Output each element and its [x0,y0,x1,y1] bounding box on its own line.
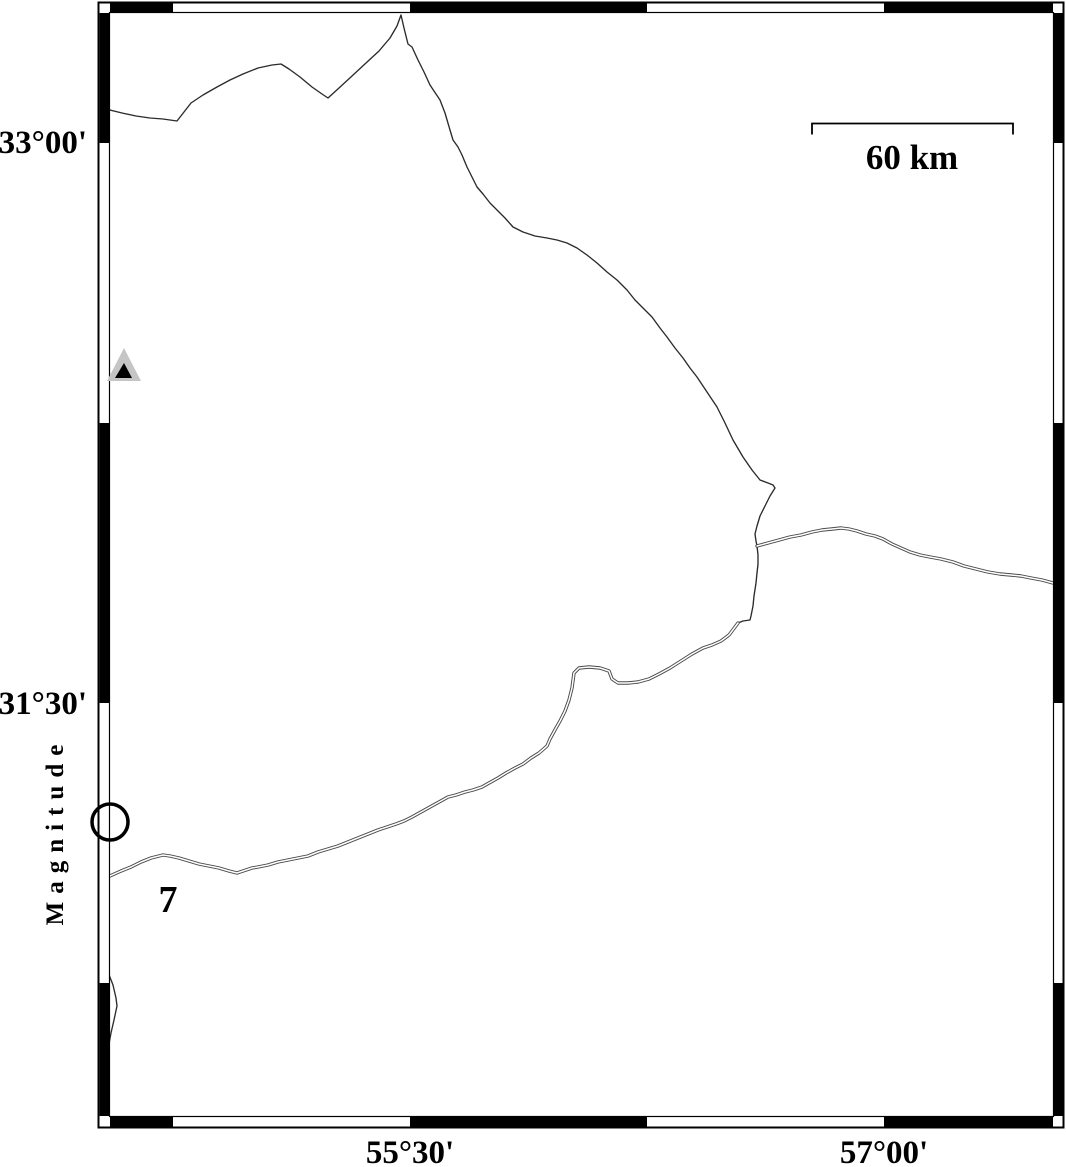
latitude-label-33-00: 33°00' [0,125,87,161]
map-page: 33°00' 31°30' 55°30' 57°00' 60 km Magnit… [0,0,1066,1167]
longitude-label-57-00: 57°00' [840,1135,928,1167]
frame-segment [1054,13,1063,143]
frame-segment [100,983,110,1116]
magnitude-legend-value: 7 [159,879,178,921]
frame-inner-rect [110,13,1054,1117]
scale-bar-label: 60 km [866,138,958,177]
boundary-line-southwest [110,623,738,876]
frame-segment [884,3,1053,12]
magnitude-legend-title: Magnitude [42,737,69,926]
longitude-label-55-30: 55°30' [366,1135,454,1167]
frame-segment [410,1117,647,1127]
frame-segment [110,1117,173,1127]
scale-bar [812,124,1013,135]
frame-segment [100,13,110,143]
latitude-label-31-30: 31°30' [0,686,87,722]
scale-bar-bracket [812,124,1013,135]
frame-segment [884,1117,1053,1127]
map-canvas: 33°00' 31°30' 55°30' 57°00' 60 km Magnit… [0,0,1066,1167]
frame-segment [1054,983,1063,1116]
boundary-line-southwest-core [110,623,738,876]
frame-segment [100,423,110,703]
map-annotations: 33°00' 31°30' 55°30' 57°00' 60 km Magnit… [0,125,958,1167]
frame-segment [1054,423,1063,703]
boundary-line-north [110,15,775,623]
frame-segment [110,3,173,12]
frame-segment [410,3,647,12]
